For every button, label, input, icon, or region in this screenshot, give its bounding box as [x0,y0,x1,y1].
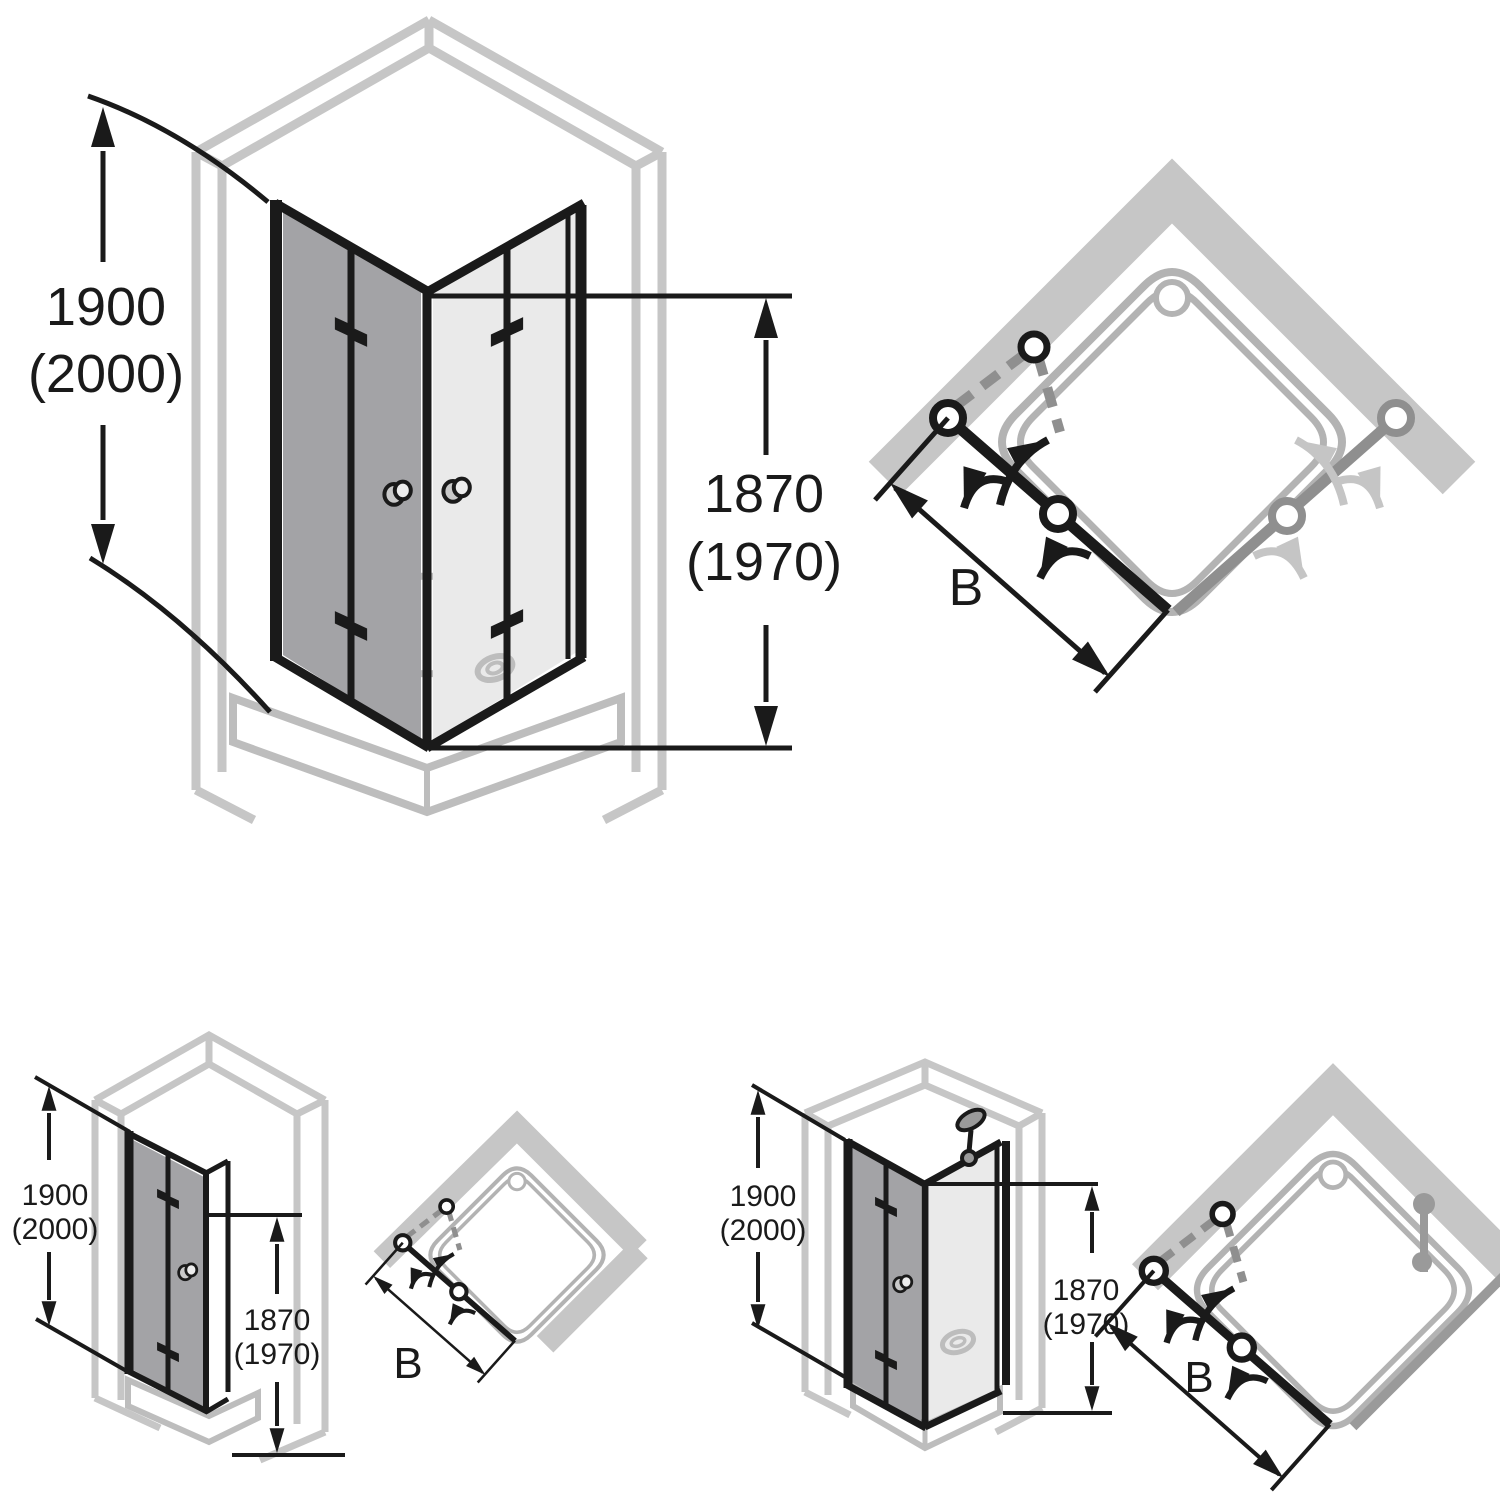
left-folding-door [275,200,429,749]
corner-entry-isometric-view: 1900 (2000) 1870 (1970) [28,20,842,820]
diagram-niche-door: 1900 (2000) 1870 (1970) [12,1035,640,1460]
dim-height-door-alt-label: (1970) [234,1338,321,1371]
dim-height-door-label: 1870 [244,1304,311,1337]
dim-height-door-label: 1870 [1053,1274,1120,1307]
corner-entry-plan-view: B [875,191,1459,692]
dimension-height-outer: 1900 (2000) [12,1077,130,1373]
dimension-height-outer: 1900 (2000) [28,96,270,712]
dim-width-label: B [393,1339,422,1388]
dim-height-outer-label: 1900 [22,1179,89,1212]
dim-height-outer-label: 1900 [730,1180,797,1213]
dim-height-door-alt-label: (1970) [686,532,842,592]
diagram-corner-door-side-panel: 1900 (2000) 1870 (1970) [720,1062,1500,1490]
side-panel-isometric-view: 1900 (2000) 1870 (1970) [720,1062,1130,1448]
dim-height-outer-alt-label: (2000) [28,344,184,404]
dim-width-label: B [949,559,984,617]
dim-width-label: B [1184,1353,1213,1402]
diagram-corner-entry: 1900 (2000) 1870 (1970) [28,20,1459,820]
dim-height-outer-label: 1900 [46,277,166,337]
side-panel-plan-view: B [1095,1089,1500,1490]
technical-drawing-page: 1900 (2000) 1870 (1970) [0,0,1500,1500]
right-folding-door [427,203,584,748]
folding-door [847,1139,926,1428]
folding-door [128,1131,228,1412]
dim-height-outer-alt-label: (2000) [720,1214,807,1247]
dim-height-outer-alt-label: (2000) [12,1213,99,1246]
dim-height-door-label: 1870 [704,464,824,524]
niche-isometric-view: 1900 (2000) 1870 (1970) [12,1035,345,1460]
drawing-canvas: 1900 (2000) 1870 (1970) [0,0,1500,1500]
niche-plan-view: B [366,1127,640,1388]
